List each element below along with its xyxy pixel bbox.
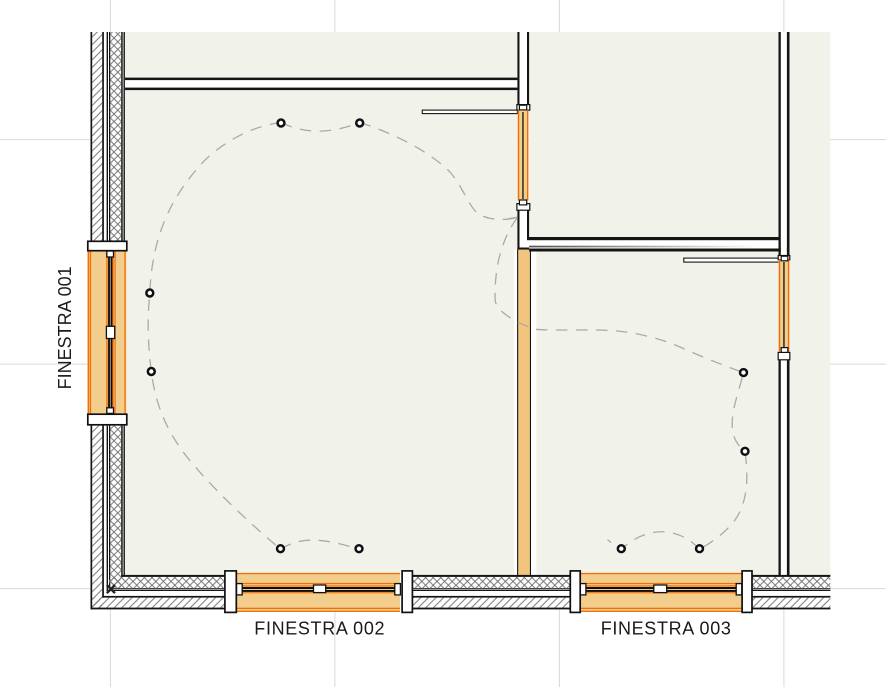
- svg-text:FINESTRA 002: FINESTRA 002: [254, 619, 385, 639]
- svg-text:FINESTRA 001: FINESTRA 001: [55, 266, 75, 389]
- svg-text:FINESTRA 003: FINESTRA 003: [601, 619, 732, 639]
